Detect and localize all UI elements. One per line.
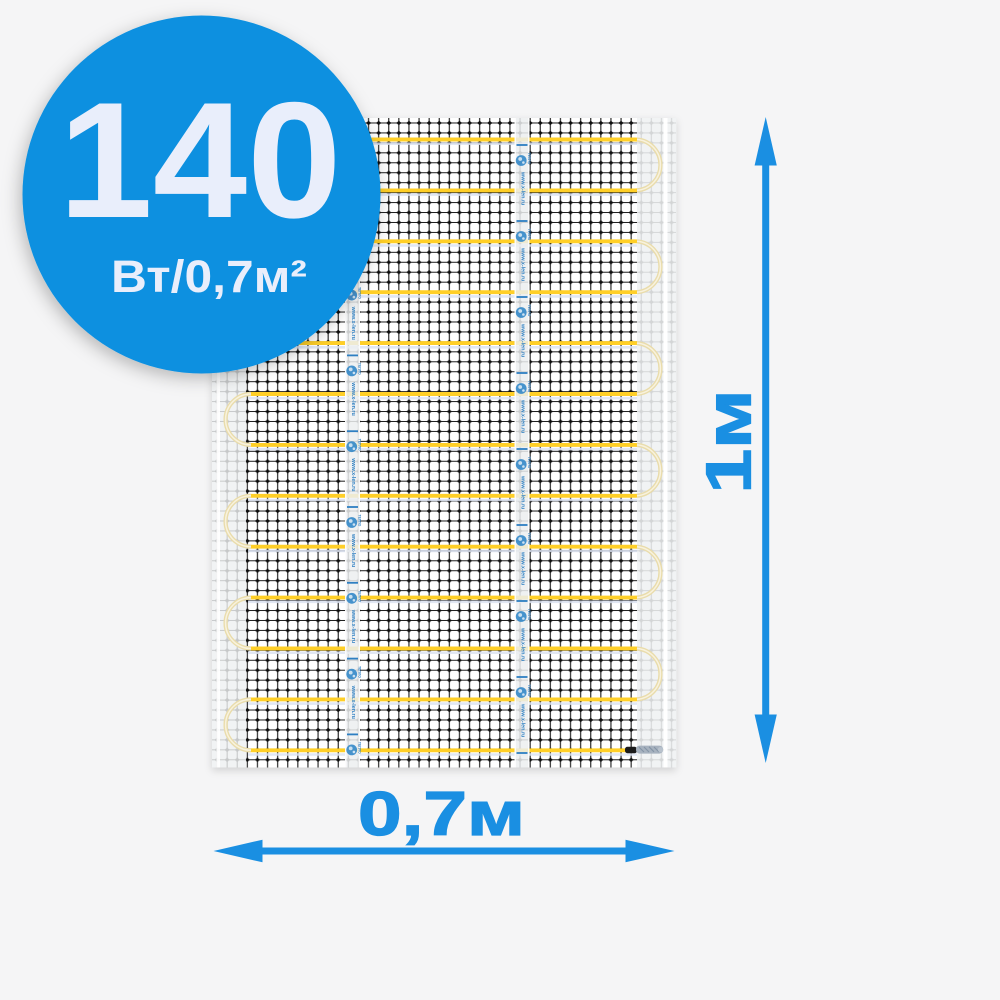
svg-text:ТЕПЛО: ТЕПЛО <box>357 515 361 527</box>
svg-text:ТЕПЛО: ТЕПЛО <box>527 229 531 241</box>
svg-text:ТЕПЛО: ТЕПЛО <box>357 666 361 678</box>
svg-text:www.x-len.ru: www.x-len.ru <box>520 247 526 281</box>
svg-text:www.x-len.ru: www.x-len.ru <box>350 609 356 643</box>
svg-text:ТЕПЛО: ТЕПЛО <box>527 685 531 697</box>
svg-text:www.x-len.ru: www.x-len.ru <box>520 475 526 509</box>
svg-text:www.x-len.ru: www.x-len.ru <box>520 323 526 357</box>
svg-text:www.x-len.ru: www.x-len.ru <box>350 685 356 719</box>
svg-text:www.x-len.ru: www.x-len.ru <box>520 551 526 585</box>
svg-text:ТЕПЛО: ТЕПЛО <box>527 457 531 469</box>
svg-text:ТЕПЛО: ТЕПЛО <box>527 533 531 545</box>
svg-text:ТЕПЛО: ТЕПЛО <box>357 287 361 299</box>
svg-text:www.x-len.ru: www.x-len.ru <box>350 306 356 340</box>
svg-text:www.x-len.ru: www.x-len.ru <box>350 533 356 567</box>
svg-text:0,7м: 0,7м <box>358 780 525 849</box>
svg-text:www.x-len.ru: www.x-len.ru <box>350 457 356 491</box>
svg-text:ТЕПЛО: ТЕПЛО <box>357 363 361 375</box>
svg-text:Вт/0,7м²: Вт/0,7м² <box>111 251 307 302</box>
svg-text:140: 140 <box>59 68 342 252</box>
svg-text:www.x-len.ru: www.x-len.ru <box>520 703 526 737</box>
svg-text:ТЕПЛО: ТЕПЛО <box>357 439 361 451</box>
svg-text:1м: 1м <box>693 390 765 494</box>
svg-text:ТЕПЛО: ТЕПЛО <box>527 305 531 317</box>
svg-text:ТЕПЛО: ТЕПЛО <box>357 742 361 754</box>
svg-text:www.x-len.ru: www.x-len.ru <box>520 399 526 433</box>
svg-text:ТЕПЛО: ТЕПЛО <box>357 590 361 602</box>
svg-text:ТЕПЛО: ТЕПЛО <box>527 609 531 621</box>
svg-text:www.x-len.ru: www.x-len.ru <box>520 171 526 205</box>
svg-text:ТЕПЛО: ТЕПЛО <box>527 153 531 165</box>
svg-text:www.x-len.ru: www.x-len.ru <box>350 381 356 415</box>
svg-text:www.x-len.ru: www.x-len.ru <box>520 627 526 661</box>
svg-text:ТЕПЛО: ТЕПЛО <box>527 381 531 393</box>
